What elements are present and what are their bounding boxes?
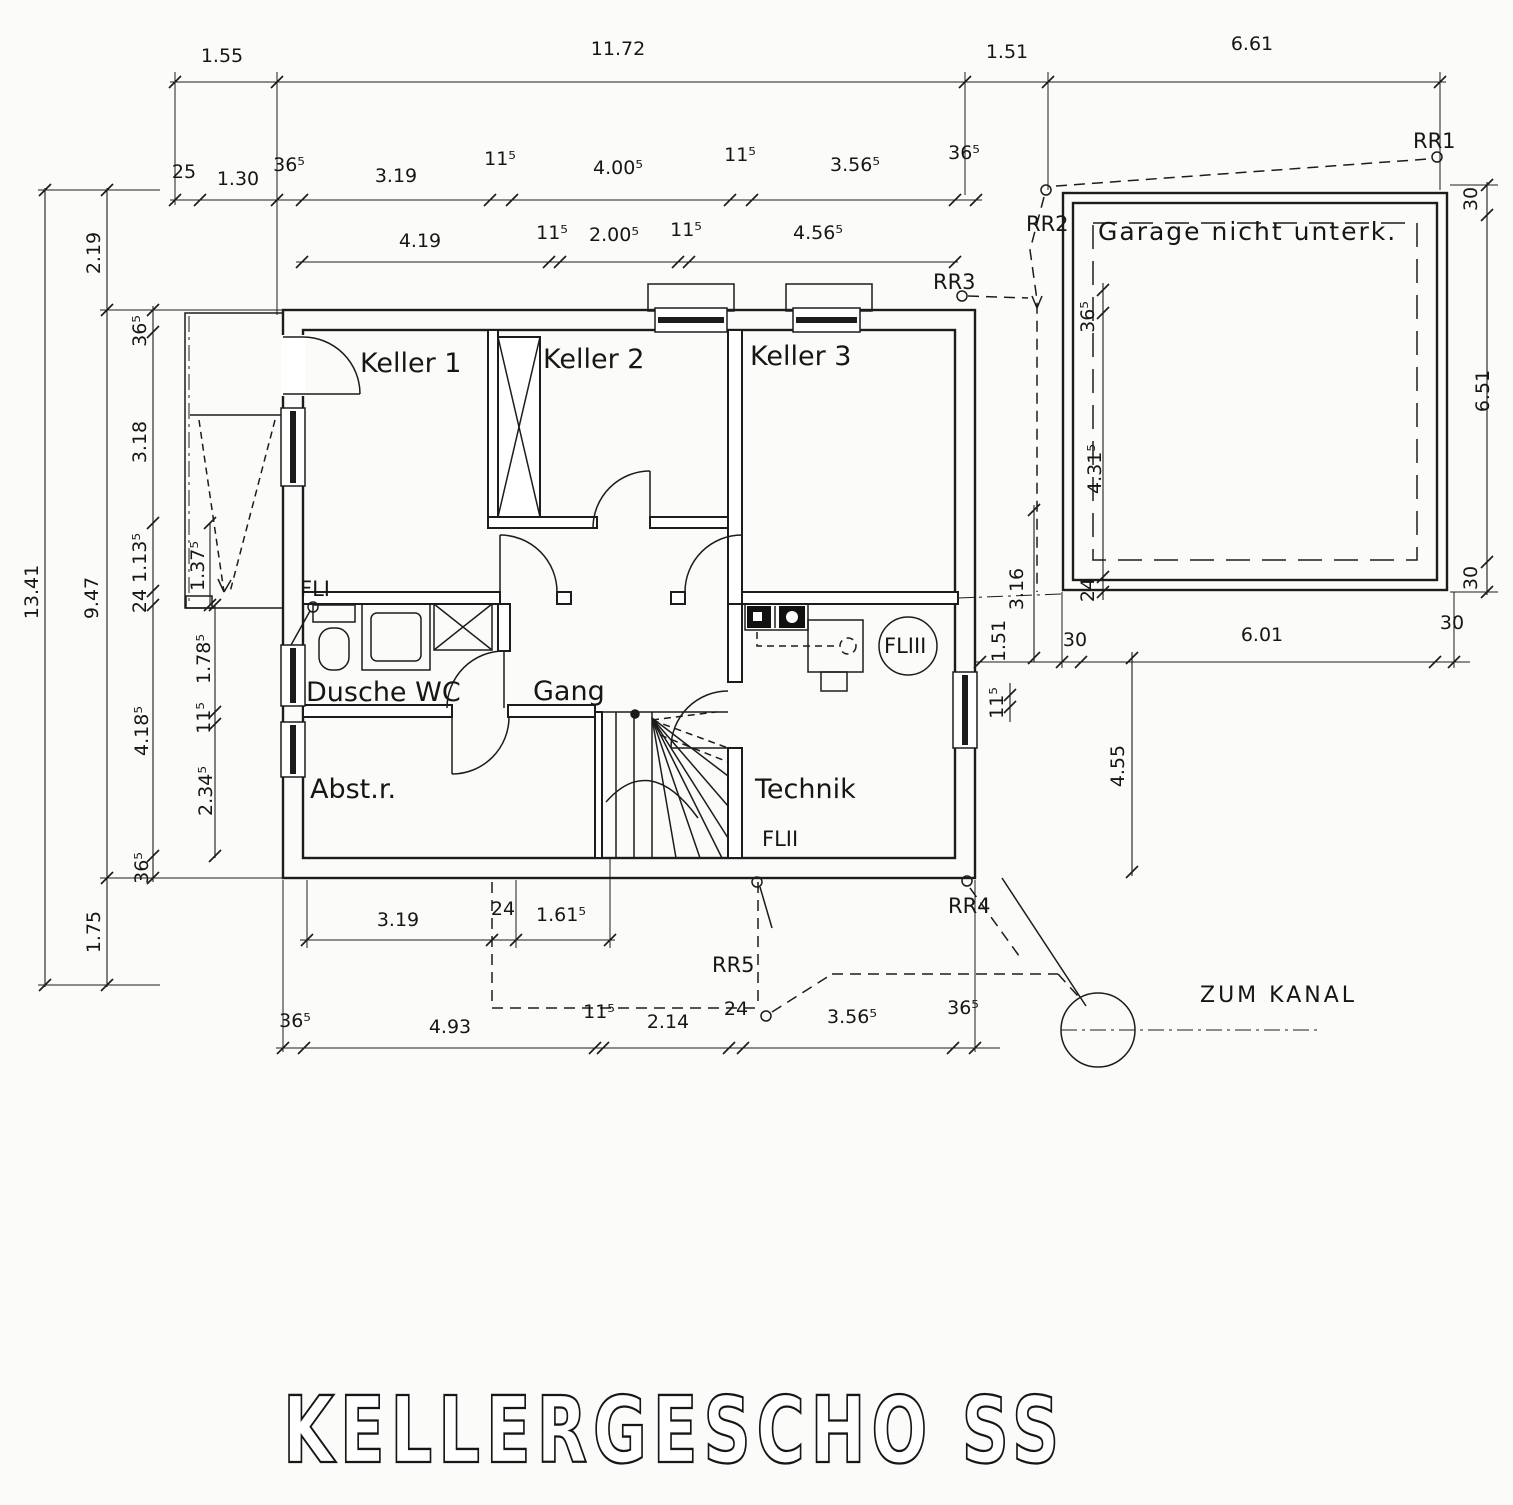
dimension-label: 3.56⁵ <box>827 1006 877 1028</box>
dimension-label: 30 <box>1460 566 1482 590</box>
dimension-label: 1.37⁵ <box>187 541 209 591</box>
dimension-label: 1.78⁵ <box>193 634 215 684</box>
dimension-label: 6.01 <box>1241 624 1283 646</box>
dimension-label: 4.56⁵ <box>793 222 843 244</box>
labels: Keller 1 Keller 2 Keller 3 Dusche WC Gan… <box>283 129 1456 1484</box>
drawing-title: KELLERGESCHO SS <box>283 1377 1065 1484</box>
dimension-label: 11⁵ <box>724 144 756 166</box>
dimension-label: 1.75 <box>83 911 105 953</box>
dimension-label: 1.30 <box>217 168 259 190</box>
rr4-label: RR4 <box>948 894 991 918</box>
fl1-label: FLI <box>300 577 330 601</box>
dimension-label: 4.18⁵ <box>131 706 153 756</box>
garage-label: Garage nicht unterk. <box>1098 217 1397 246</box>
dimension-label: 1.61⁵ <box>536 904 586 926</box>
wc-cistern <box>313 605 355 622</box>
rr1-label: RR1 <box>1413 129 1456 153</box>
dimension-label: 4.19 <box>399 230 441 252</box>
room-label-gang: Gang <box>533 676 605 707</box>
dimension-label: 3.56⁵ <box>830 154 880 176</box>
dimension-label: 30 <box>1440 612 1464 634</box>
dimension-label: 3.16 <box>1006 568 1028 610</box>
rr5-label: RR5 <box>712 953 755 977</box>
room-label-keller3: Keller 3 <box>750 341 851 372</box>
room-label-abstellraum: Abst.r. <box>310 774 396 805</box>
dimension-label: 2.19 <box>83 232 105 274</box>
dimension-label: 24 <box>1077 578 1099 602</box>
garage <box>1063 193 1447 590</box>
rr2-label: RR2 <box>1026 212 1069 236</box>
dimension-label: 11⁵ <box>193 702 215 734</box>
dimension-label: 6.61 <box>1231 33 1273 55</box>
dimension-label: 36⁵ <box>279 1010 311 1032</box>
dimension-label: 3.18 <box>129 421 151 463</box>
dimension-label: 9.47 <box>81 577 103 619</box>
dimension-label: 11⁵ <box>670 219 702 241</box>
rr3-label: RR3 <box>933 270 976 294</box>
dimension-label: 36⁵ <box>948 142 980 164</box>
dimension-label: 36⁵ <box>273 154 305 176</box>
dimension-label: 2.00⁵ <box>589 224 639 246</box>
dimension-label: 11.72 <box>591 38 645 60</box>
dimension-label: 1.13⁵ <box>129 533 151 583</box>
dimension-label: 11⁵ <box>536 222 568 244</box>
dimension-label: 24 <box>724 998 748 1020</box>
rr5-shaft-icon <box>761 1011 771 1021</box>
dimension-label: 4.00⁵ <box>593 157 643 179</box>
dimension-label: 36⁵ <box>129 315 151 347</box>
fl2-label: FLII <box>762 827 798 851</box>
dimension-label: 24 <box>129 589 151 613</box>
lightwell <box>648 284 734 311</box>
dimension-label: 11⁵ <box>986 687 1008 719</box>
lightwell <box>786 284 872 311</box>
dimension-label: 30 <box>1063 629 1087 651</box>
room-label-dusche-wc: Dusche WC <box>306 677 461 708</box>
dimension-label: 1.55 <box>201 45 243 67</box>
dimension-label: 36⁵ <box>131 852 153 884</box>
dimension-label: 11⁵ <box>484 148 516 170</box>
dimension-label: 4.31⁵ <box>1084 444 1106 494</box>
spiral-stair <box>602 710 728 858</box>
dimension-label: 1.51 <box>988 620 1010 662</box>
drainage <box>291 152 1442 1067</box>
dimension-label: 24 <box>491 898 515 920</box>
zum-kanal-label: ZUM KANAL <box>1200 983 1357 1008</box>
room-label-keller2: Keller 2 <box>543 344 644 375</box>
bathroom-fixtures <box>313 604 492 670</box>
floor-plan-drawing: Keller 1 Keller 2 Keller 3 Dusche WC Gan… <box>0 0 1513 1505</box>
wc-bowl <box>319 628 349 670</box>
dimension-label: 25 <box>172 161 196 183</box>
shower-tray <box>362 604 430 670</box>
dimension-label: 3.19 <box>377 909 419 931</box>
rr2-shaft-icon <box>1041 185 1051 195</box>
dimension-label: 4.93 <box>429 1016 471 1038</box>
dimension-label: 36⁵ <box>947 997 979 1019</box>
dimension-label: 30 <box>1460 187 1482 211</box>
dimension-label: 36⁵ <box>1077 301 1099 333</box>
dimension-label: 13.41 <box>21 565 43 619</box>
blueprint-scan: Keller 1 Keller 2 Keller 3 Dusche WC Gan… <box>0 0 1513 1505</box>
room-label-keller1: Keller 1 <box>360 348 461 379</box>
dimension-label: 4.55 <box>1107 745 1129 787</box>
dimension-label: 11⁵ <box>583 1001 615 1023</box>
fl3-label: FLIII <box>884 634 926 658</box>
dimension-label: 3.19 <box>375 165 417 187</box>
dimension-label: 1.51 <box>986 41 1028 63</box>
room-label-technik: Technik <box>754 774 856 805</box>
dimension-label: 6.51 <box>1472 370 1494 412</box>
dimension-label: 2.34⁵ <box>195 766 217 816</box>
dimension-label: 2.14 <box>647 1011 689 1033</box>
